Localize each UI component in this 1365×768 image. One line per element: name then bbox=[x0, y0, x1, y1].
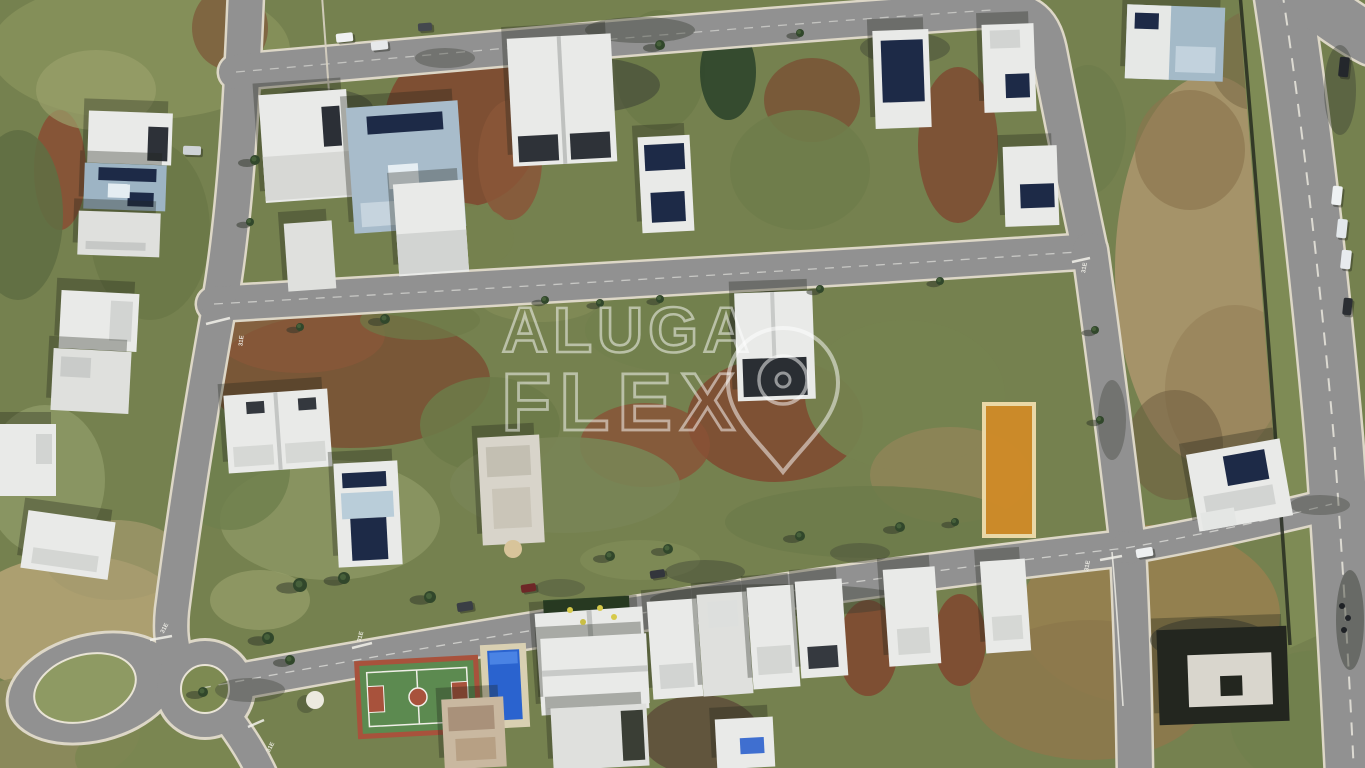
house bbox=[976, 11, 1036, 113]
tree-crown bbox=[607, 553, 612, 558]
house bbox=[1120, 0, 1226, 82]
roof-section bbox=[263, 151, 354, 201]
house-roof bbox=[20, 510, 115, 580]
cast-shadow bbox=[535, 579, 585, 597]
roof-section bbox=[486, 445, 532, 477]
small-object bbox=[611, 614, 617, 620]
car bbox=[1338, 57, 1352, 80]
house bbox=[278, 208, 336, 292]
roof-section bbox=[757, 645, 793, 675]
roof-section bbox=[36, 434, 52, 464]
car bbox=[371, 40, 391, 53]
cast-shadow bbox=[215, 678, 285, 702]
terrain-patch bbox=[1135, 90, 1245, 210]
car-body bbox=[336, 32, 354, 43]
car-body bbox=[1336, 219, 1348, 239]
tree-crown bbox=[382, 316, 387, 321]
house-roof bbox=[284, 220, 337, 291]
roof-section bbox=[109, 301, 133, 342]
car bbox=[183, 146, 203, 158]
roof-section bbox=[60, 356, 91, 378]
roof-section bbox=[285, 441, 326, 464]
house bbox=[1179, 427, 1293, 533]
car-body bbox=[418, 23, 433, 32]
tree-crown bbox=[200, 689, 205, 694]
tree-crown bbox=[897, 524, 902, 529]
car-body bbox=[1338, 57, 1350, 78]
car bbox=[1331, 186, 1345, 208]
house bbox=[0, 412, 56, 496]
roof-section bbox=[321, 106, 342, 147]
tree-crown bbox=[296, 581, 303, 588]
small-object bbox=[1345, 615, 1351, 621]
tree-crown bbox=[817, 286, 821, 290]
house bbox=[974, 547, 1031, 654]
roof-section bbox=[570, 132, 611, 160]
tree-crown bbox=[1092, 327, 1096, 331]
court-key-left bbox=[367, 686, 384, 713]
solar-panels bbox=[1134, 13, 1159, 30]
roof-section bbox=[659, 663, 695, 689]
car bbox=[1340, 250, 1354, 272]
car-body bbox=[1331, 186, 1343, 206]
solar-panels bbox=[98, 167, 156, 182]
solar-panels bbox=[1005, 73, 1030, 98]
house bbox=[387, 168, 469, 277]
roof-section bbox=[341, 491, 394, 520]
tree-crown bbox=[247, 219, 251, 223]
roof-section bbox=[233, 444, 274, 467]
small-object bbox=[1339, 603, 1345, 609]
roof-section bbox=[621, 710, 646, 761]
house bbox=[867, 17, 932, 129]
roof-section bbox=[807, 645, 838, 669]
small-object bbox=[597, 605, 603, 611]
terrain-patch bbox=[730, 110, 870, 230]
car-body bbox=[371, 40, 389, 51]
tree-crown bbox=[1097, 417, 1101, 421]
tree-crown bbox=[426, 593, 432, 599]
solar-panels bbox=[342, 471, 387, 488]
car-body bbox=[1342, 298, 1353, 316]
solar-panels bbox=[644, 143, 685, 171]
house bbox=[789, 567, 848, 679]
solar-panels bbox=[650, 191, 686, 223]
house bbox=[545, 692, 650, 768]
house bbox=[72, 198, 161, 257]
house bbox=[45, 336, 132, 414]
roof-section bbox=[1220, 675, 1243, 696]
tree-crown bbox=[937, 278, 941, 282]
solar-panels bbox=[881, 39, 925, 102]
small-object bbox=[1341, 627, 1347, 633]
house bbox=[709, 705, 775, 768]
house-roof bbox=[77, 211, 160, 258]
roof-section bbox=[492, 487, 532, 529]
tree-crown bbox=[287, 657, 292, 662]
house bbox=[501, 21, 617, 167]
solar-panels bbox=[350, 517, 388, 561]
roof-section bbox=[992, 615, 1024, 641]
house bbox=[997, 133, 1059, 227]
aerial-photo-canvas: 31E31E31E31E31E31E ALUGA FLEX bbox=[0, 0, 1365, 768]
court-center-circle bbox=[409, 688, 428, 707]
roof-section bbox=[246, 401, 265, 414]
house bbox=[436, 684, 507, 768]
tree-crown bbox=[252, 157, 257, 162]
roof-section bbox=[518, 134, 559, 162]
house bbox=[15, 498, 117, 580]
roof-section bbox=[455, 737, 496, 761]
terrain-patch bbox=[210, 570, 310, 630]
tree-crown bbox=[797, 30, 801, 34]
house bbox=[632, 123, 695, 234]
tree-crown bbox=[657, 42, 662, 47]
pool-shallow-end bbox=[489, 651, 518, 664]
roof-section bbox=[448, 705, 495, 731]
tree-crown bbox=[340, 574, 346, 580]
house bbox=[328, 448, 403, 567]
small-object bbox=[306, 691, 324, 709]
roof-section bbox=[298, 397, 317, 410]
small-object bbox=[567, 607, 573, 613]
roof-section bbox=[897, 627, 931, 655]
small-object bbox=[580, 619, 586, 625]
car bbox=[336, 32, 356, 45]
tree-crown bbox=[952, 519, 956, 523]
tree-crown bbox=[665, 546, 670, 551]
tree-crown bbox=[297, 324, 301, 328]
watermark-line1: ALUGA bbox=[502, 294, 755, 366]
roof-section bbox=[1175, 46, 1216, 73]
house bbox=[253, 77, 354, 203]
tree-crown bbox=[264, 634, 270, 640]
house bbox=[1151, 614, 1290, 726]
watermark-line2: FLEX bbox=[501, 357, 743, 448]
roof-section bbox=[740, 737, 765, 754]
house bbox=[218, 376, 333, 473]
aerial-photo: 31E31E31E31E31E31E ALUGA FLEX bbox=[0, 0, 1365, 768]
roof-section bbox=[990, 30, 1021, 49]
cast-shadow bbox=[415, 48, 475, 68]
car-body bbox=[183, 146, 201, 156]
roof-section bbox=[396, 230, 469, 275]
car bbox=[1342, 298, 1355, 318]
roof-section bbox=[108, 183, 130, 198]
small-object bbox=[504, 540, 522, 558]
highlighted-lot bbox=[984, 404, 1034, 536]
roof-section bbox=[707, 600, 739, 628]
solar-panels bbox=[1020, 183, 1055, 208]
car-body bbox=[1340, 250, 1352, 270]
house bbox=[877, 554, 941, 667]
cast-shadow bbox=[1290, 495, 1350, 515]
tree-crown bbox=[797, 533, 802, 538]
car bbox=[1336, 219, 1350, 241]
